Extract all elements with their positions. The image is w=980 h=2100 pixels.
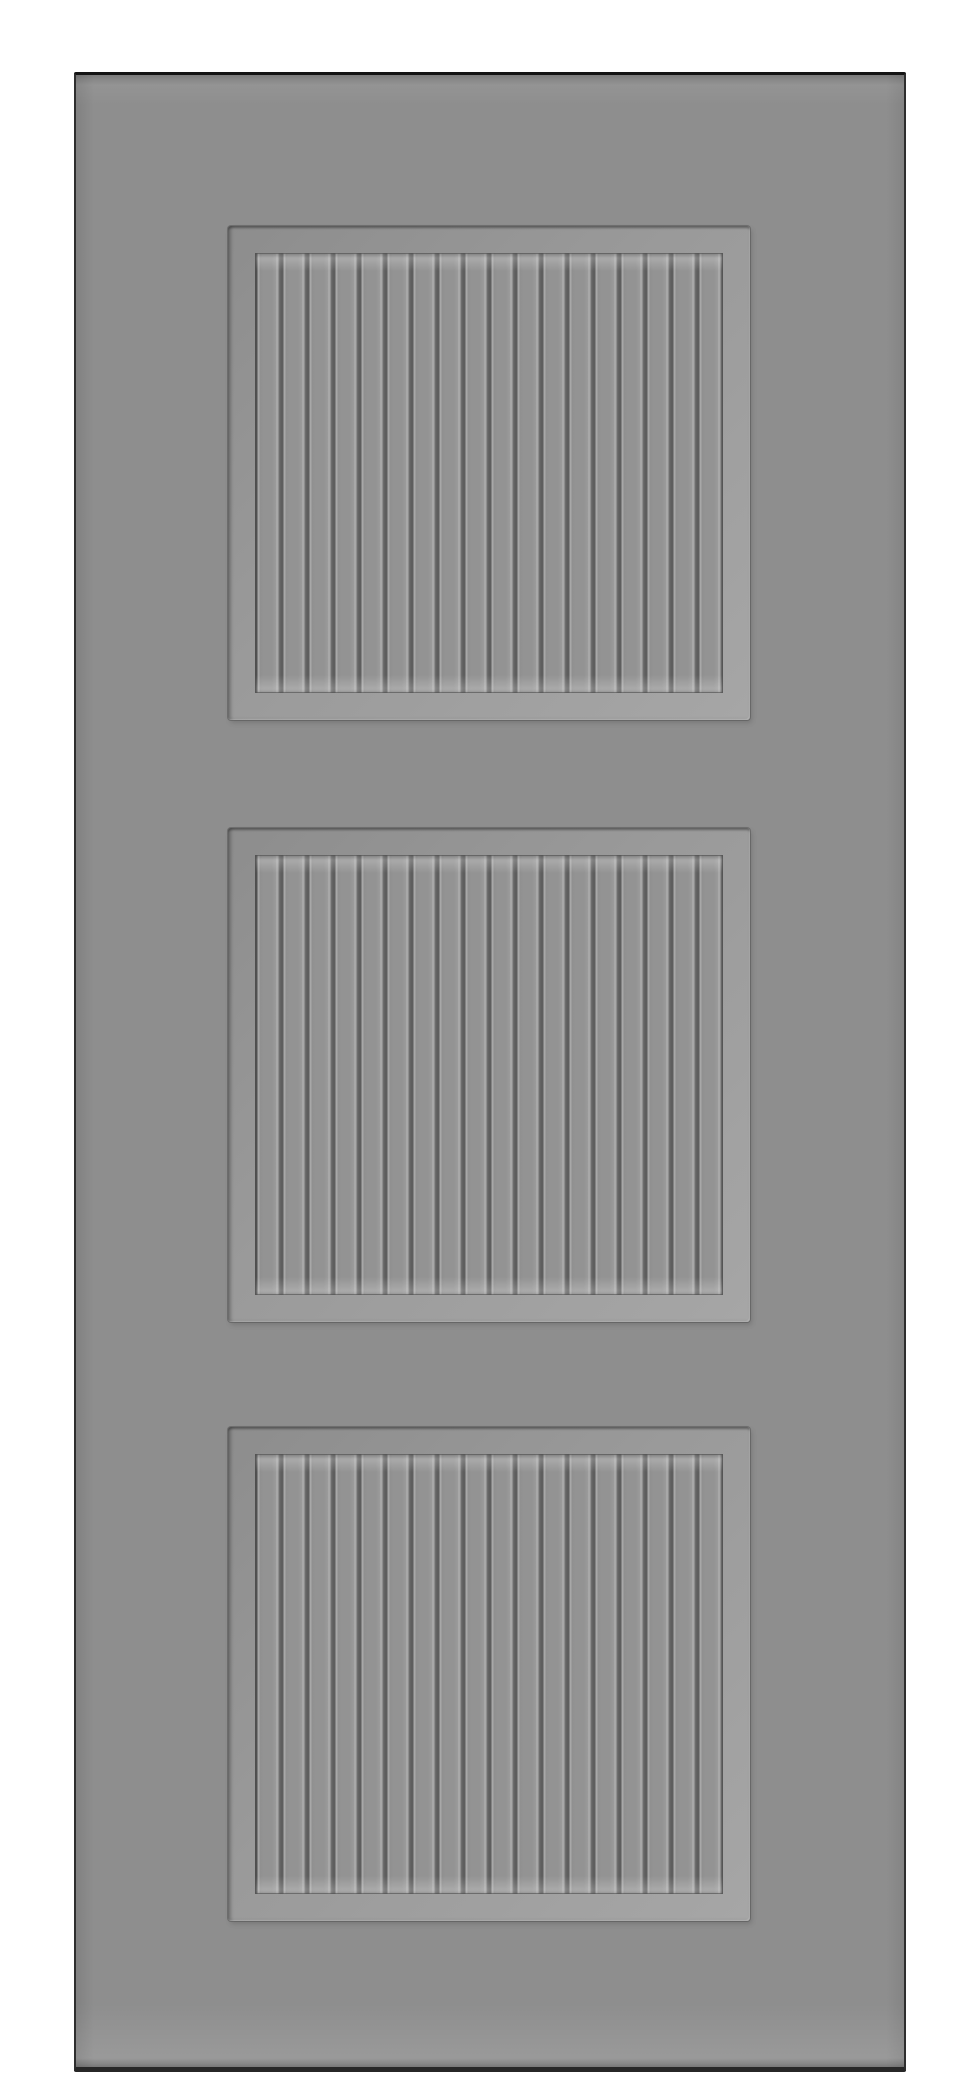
image-background xyxy=(0,0,980,2100)
door-panel-bottom-panel xyxy=(228,1427,750,1921)
door-panel-middle-panel xyxy=(228,828,750,1322)
door-panel-top-panel xyxy=(228,226,750,720)
door-slab xyxy=(74,72,906,2072)
beadboard-top-panel xyxy=(255,253,723,693)
beadboard-bottom-panel xyxy=(255,1454,723,1894)
beadboard-middle-panel xyxy=(255,855,723,1295)
